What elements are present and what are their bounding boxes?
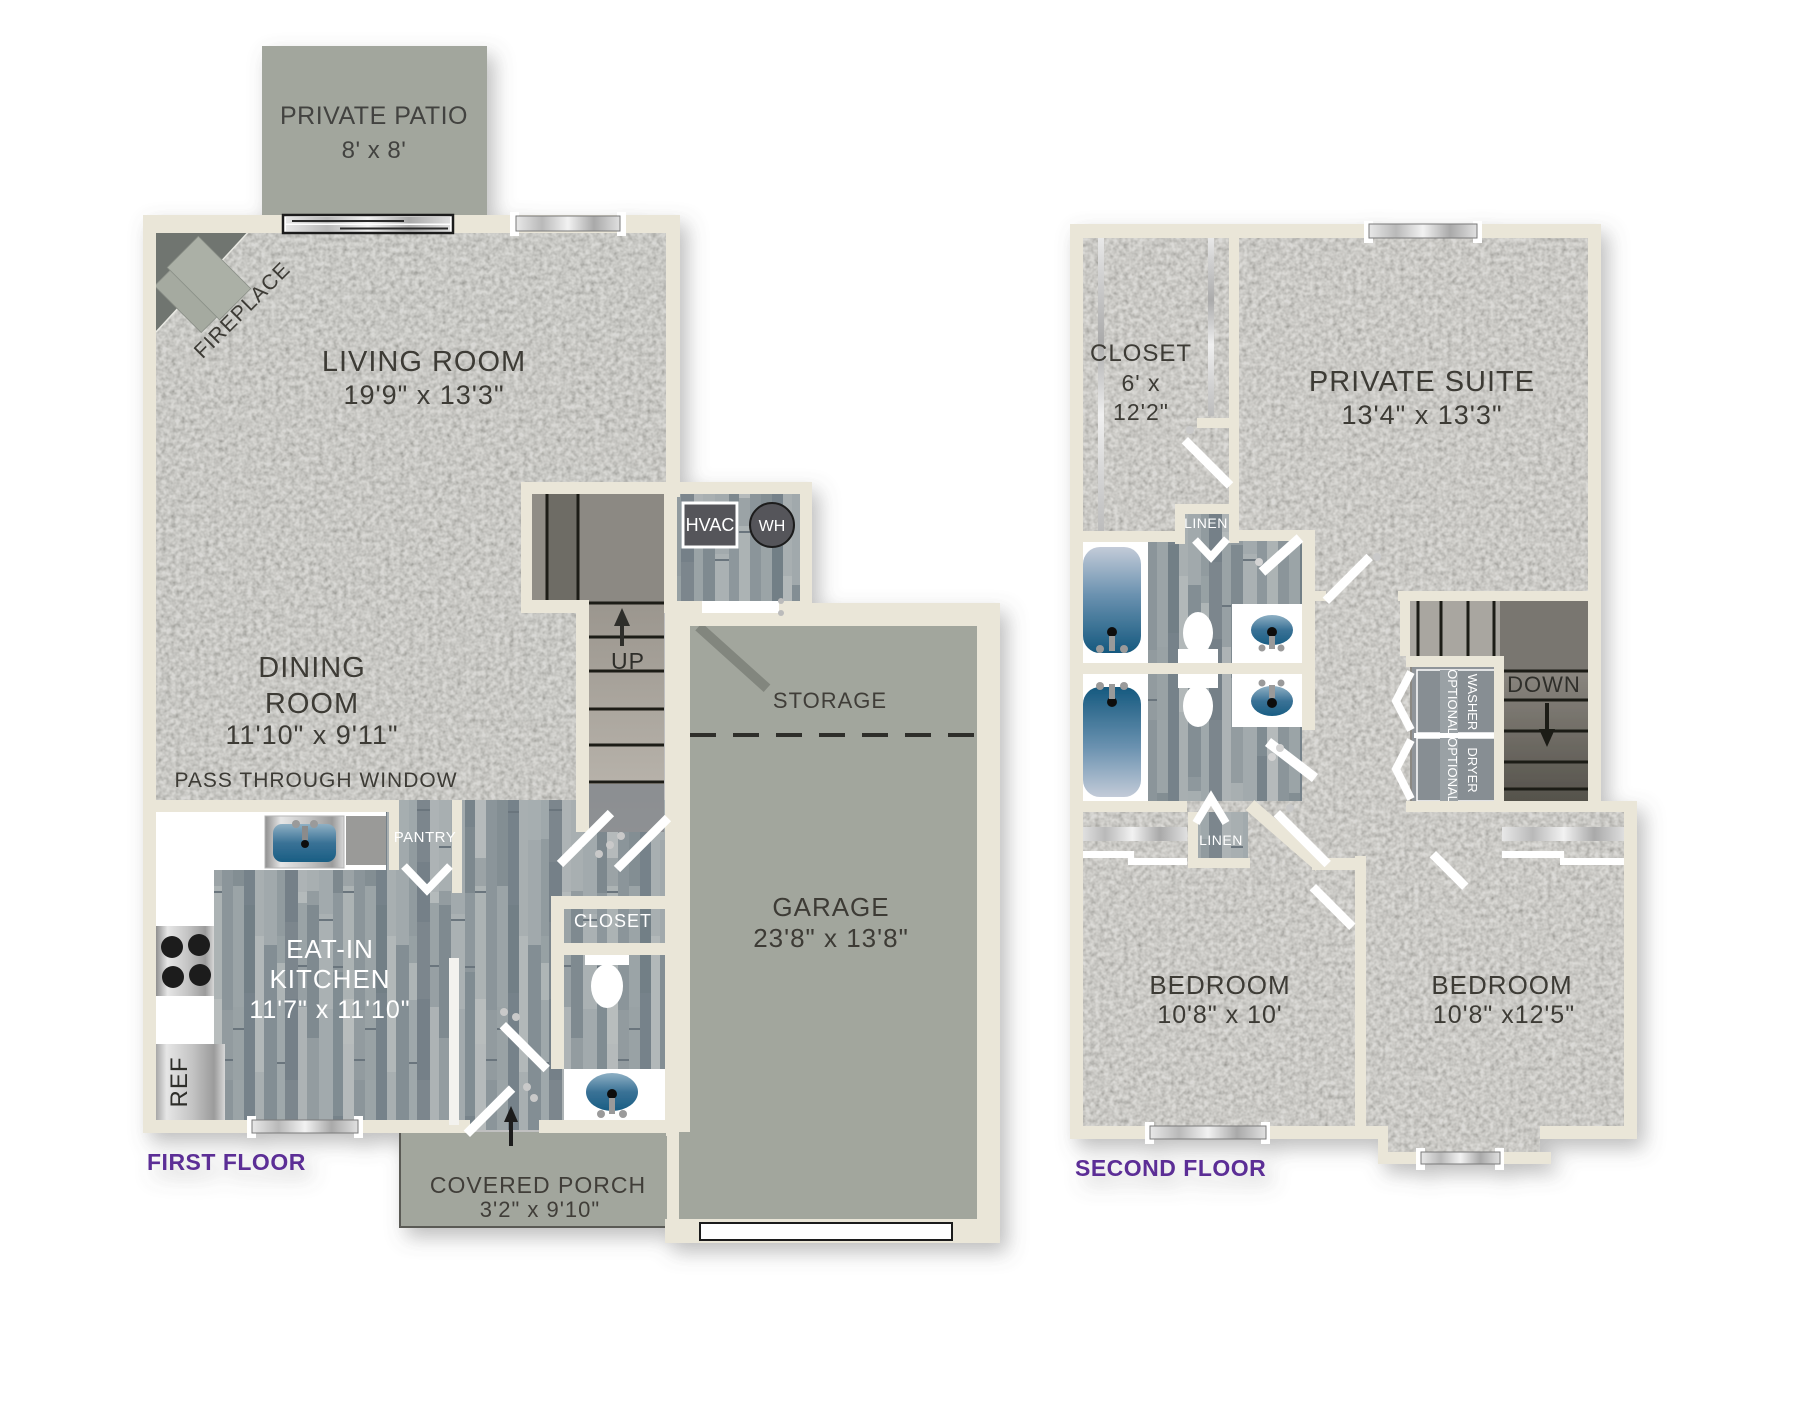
svg-text:10'8" x 10': 10'8" x 10' [1157,1001,1282,1029]
svg-text:EAT-IN: EAT-IN [286,934,374,964]
svg-text:DRYER: DRYER [1465,747,1480,792]
svg-text:11'10" x 9'11": 11'10" x 9'11" [225,720,398,750]
svg-text:DINING: DINING [258,652,366,684]
svg-text:HVAC: HVAC [686,515,735,535]
svg-text:6' x: 6' x [1121,370,1160,396]
svg-text:OPTIONAL: OPTIONAL [1445,669,1460,735]
svg-text:PRIVATE PATIO: PRIVATE PATIO [280,102,468,130]
svg-text:11'7" x 11'10": 11'7" x 11'10" [249,996,410,1024]
svg-text:GARAGE: GARAGE [772,892,889,922]
svg-text:KITCHEN: KITCHEN [269,964,390,994]
svg-text:DOWN: DOWN [1507,672,1581,697]
svg-text:PASS THROUGH WINDOW: PASS THROUGH WINDOW [174,769,457,792]
svg-text:ROOM: ROOM [265,688,359,720]
svg-text:10'8" x12'5": 10'8" x12'5" [1433,1001,1575,1029]
svg-text:8' x 8': 8' x 8' [342,137,407,164]
svg-text:PANTRY: PANTRY [394,829,456,846]
svg-text:OPTIONAL: OPTIONAL [1445,737,1460,803]
svg-text:PRIVATE SUITE: PRIVATE SUITE [1309,366,1535,398]
svg-text:CLOSET: CLOSET [574,911,652,931]
svg-text:UP: UP [611,648,645,674]
svg-text:LINEN: LINEN [1184,515,1228,531]
svg-text:BEDROOM: BEDROOM [1431,970,1572,1000]
svg-text:19'9" x 13'3": 19'9" x 13'3" [343,380,504,410]
svg-text:LIVING ROOM: LIVING ROOM [322,346,526,378]
svg-text:WH: WH [759,518,786,535]
svg-text:SECOND FLOOR: SECOND FLOOR [1075,1155,1266,1181]
svg-text:12'2": 12'2" [1113,399,1169,425]
svg-text:BEDROOM: BEDROOM [1149,970,1290,1000]
svg-text:FIRST FLOOR: FIRST FLOOR [147,1149,306,1175]
svg-text:3'2" x 9'10": 3'2" x 9'10" [480,1197,600,1222]
svg-text:STORAGE: STORAGE [773,688,887,713]
svg-text:23'8" x 13'8": 23'8" x 13'8" [753,923,909,953]
svg-text:CLOSET: CLOSET [1090,340,1192,367]
svg-text:REF: REF [166,1057,193,1108]
svg-text:LINEN: LINEN [1199,832,1243,848]
svg-text:13'4" x 13'3": 13'4" x 13'3" [1341,400,1502,430]
svg-text:WASHER: WASHER [1465,674,1480,731]
svg-text:COVERED PORCH: COVERED PORCH [430,1172,646,1198]
